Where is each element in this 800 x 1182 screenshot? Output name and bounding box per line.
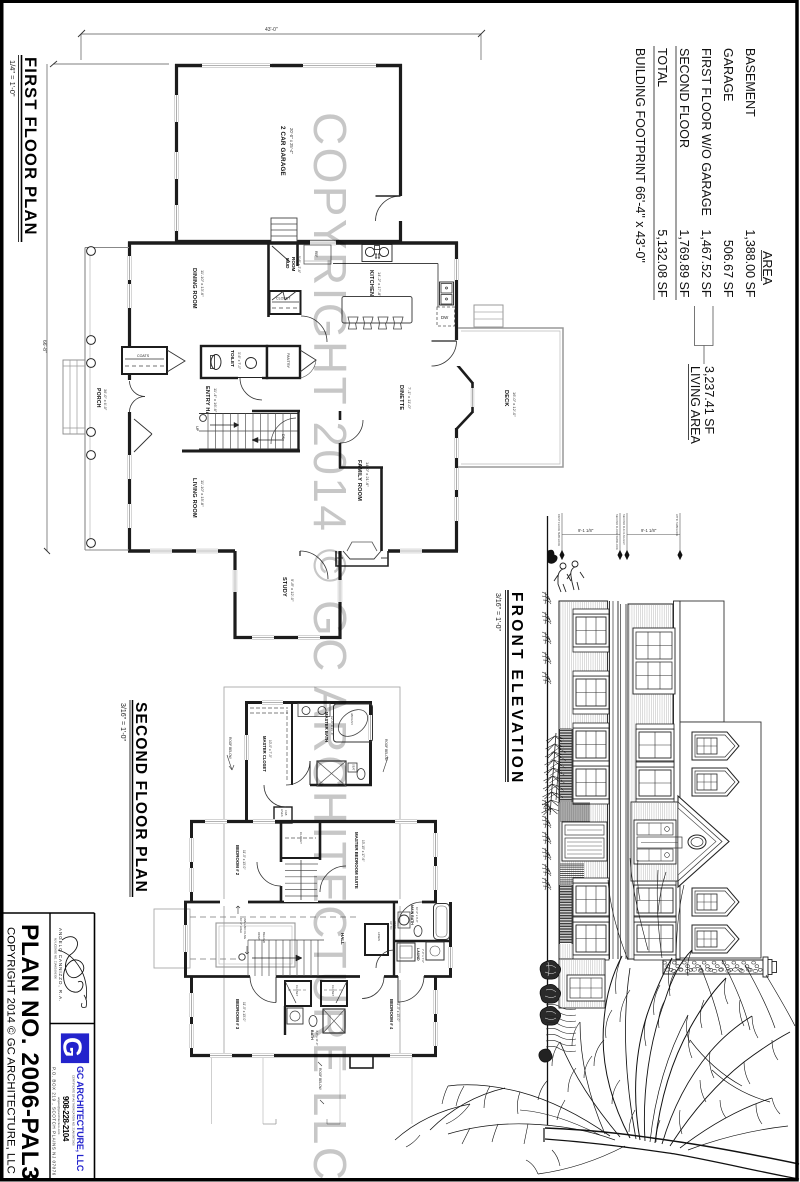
svg-text:ROOM: ROOM [291,257,296,271]
svg-text:11'-10" x 13'-6": 11'-10" x 13'-6" [200,270,205,297]
svg-text:PANTRY: PANTRY [286,353,290,369]
svg-text:ROOF BELOW: ROOF BELOW [228,737,232,759]
svg-text:1,769.89 SF: 1,769.89 SF [677,229,691,297]
svg-text:66'-8": 66'-8" [41,340,47,353]
svg-text:COPYRIGHT 2014 © GC ARCHITECTU: COPYRIGHT 2014 © GC ARCHITECTURE LLC [304,112,356,1182]
svg-text:LAUND: LAUND [416,948,420,961]
svg-text:SECOND FLOOR SUBFLOOR: SECOND FLOOR SUBFLOOR [615,514,619,550]
svg-text:1/4" = 1'-0": 1/4" = 1'-0" [8,60,17,97]
svg-text:10'-0" x 6'-0": 10'-0" x 6'-0" [415,907,419,923]
svg-text:LIVING ROOM: LIVING ROOM [191,478,197,518]
svg-text:PLAN NO. 2006-PAL3: PLAN NO. 2006-PAL3 [16,924,43,1180]
svg-text:16'-0" x 12'-0": 16'-0" x 12'-0" [512,392,517,417]
svg-text:11'-0" x 13'-0": 11'-0" x 13'-0" [242,1002,246,1021]
svg-text:CLOSET: CLOSET [295,985,299,996]
svg-text:MUD: MUD [285,258,290,269]
svg-text:BELOW: BELOW [262,932,266,943]
svg-text:KITCHEN: KITCHEN [368,270,374,296]
svg-text:13'-10" x 17'-6": 13'-10" x 17'-6" [361,840,365,861]
svg-text:DW: DW [441,315,449,320]
svg-text:SECOND FLOOR: SECOND FLOOR [677,48,691,148]
svg-text:OPEN: OPEN [257,932,261,941]
svg-text:3,237.41 SF: 3,237.41 SF [702,366,716,434]
svg-text:SECOND FLOOR PLAN: SECOND FLOOR PLAN [132,702,149,893]
svg-text:TOILET: TOILET [229,350,235,367]
svg-text:MAIN BATH: MAIN BATH [410,905,414,925]
svg-text:1,467.52 SF: 1,467.52 SF [699,229,713,297]
svg-text:LIVING AREA: LIVING AREA [688,366,702,444]
svg-text:CERTIFICATE OF AUTHORIZATION N: CERTIFICATE OF AUTHORIZATION NO. 21AI009… [72,1075,76,1146]
svg-text:LINEN: LINEN [280,809,284,817]
svg-text:BUILDING FOOTPRINT 66'-4" x 4: BUILDING FOOTPRINT 66'-4" x 43'-0" [633,48,647,263]
svg-text:10'-0" x 7'-0": 10'-0" x 7'-0" [268,740,272,758]
svg-text:2 CAR GARAGE: 2 CAR GARAGE [279,126,286,176]
svg-text:3/16" = 1'-0": 3/16" = 1'-0" [494,593,501,632]
svg-text:TOTAL: TOTAL [655,48,669,87]
svg-text:FIRST FLOOR PLAN: FIRST FLOOR PLAN [21,57,39,236]
svg-text:ANGELO CANNIZZO, R.A.: ANGELO CANNIZZO, R.A. [58,928,63,1002]
svg-text:9'-1 1/8": 9'-1 1/8" [641,528,657,533]
svg-text:DECK: DECK [503,390,509,407]
svg-text:GARAGE: GARAGE [721,48,735,102]
svg-text:11'-0" x 13'-0": 11'-0" x 13'-0" [396,1002,400,1021]
svg-text:BEDROOM # 3: BEDROOM # 3 [235,999,240,1030]
svg-text:BEDROOM # 4: BEDROOM # 4 [389,999,394,1030]
svg-text:GC ARCHITECTURE, LLC: GC ARCHITECTURE, LLC [75,1066,85,1172]
svg-text:UP: UP [195,426,199,432]
svg-text:9'-8" x 12'-0": 9'-8" x 12'-0" [290,579,295,602]
svg-text:14'-0" x 21'-6": 14'-0" x 21'-6" [365,462,370,487]
svg-text:11'-4" x 16'-6": 11'-4" x 16'-6" [213,388,218,413]
svg-text:FIRST FLOOR SUBFLOOR: FIRST FLOOR SUBFLOOR [557,514,561,546]
svg-text:5,132.08 SF: 5,132.08 SF [655,229,669,297]
svg-text:11'-10" x 15'-8": 11'-10" x 15'-8" [200,480,205,507]
svg-text:CLOSET: CLOSET [276,297,291,301]
svg-text:ROOF BELOW: ROOF BELOW [384,739,388,761]
svg-text:FIRST FLOOR W/O GARAGE: FIRST FLOOR W/O GARAGE [699,48,713,216]
svg-text:506.67 SF: 506.67 SF [721,240,735,298]
svg-text:3'-6" x 7'-0": 3'-6" x 7'-0" [237,352,241,370]
svg-text:1,388.00 SF: 1,388.00 SF [743,229,757,297]
svg-text:angelo@gcarchitecture.com: angelo@gcarchitecture.com [57,1097,61,1135]
svg-text:UP TO: UP TO [389,921,393,930]
svg-text:5'-6" x 2'-6": 5'-6" x 2'-6" [297,256,301,274]
svg-text:AREA: AREA [760,251,774,286]
svg-text:DN: DN [281,434,285,440]
svg-text:DINETTE: DINETTE [398,385,404,410]
svg-text:ATTIC SUBFLOOR: ATTIC SUBFLOOR [675,514,679,536]
svg-text:9'-1 1/8": 9'-1 1/8" [578,528,594,533]
svg-text:MASTER CLOSET: MASTER CLOSET [262,736,267,772]
svg-text:NJ LICENSE NO. 21AI01606300: NJ LICENSE NO. 21AI01606300 [54,938,58,979]
svg-text:43'-0": 43'-0" [265,27,278,33]
svg-text:20'-0" x 25'-4": 20'-0" x 25'-4" [289,128,294,154]
svg-text:10'-0" HIGH: 10'-0" HIGH [239,918,243,933]
svg-text:COATS: COATS [137,354,150,358]
svg-text:908-228-2104: 908-228-2104 [61,1096,70,1142]
svg-text:7'-1" x 11'-0": 7'-1" x 11'-0" [407,387,412,410]
svg-text:COPYRIGHT 2014 © GC ARCHITECTU: COPYRIGHT 2014 © GC ARCHITECTURE, LLC [5,927,17,1174]
svg-text:WALL/NO CLNG: WALL/NO CLNG [243,918,247,939]
svg-text:C: C [64,1043,81,1054]
svg-text:BEDROOM # 2: BEDROOM # 2 [235,845,240,876]
svg-text:SECOND FLR CLNG HGT: SECOND FLR CLNG HGT [622,514,626,545]
svg-text:14'-2" x 17'-8": 14'-2" x 17'-8" [377,272,382,297]
svg-text:FRONT ELEVATION: FRONT ELEVATION [508,592,525,786]
svg-text:11'-0" x 13'-0": 11'-0" x 13'-0" [242,850,246,869]
svg-text:BASEMENT: BASEMENT [743,48,757,117]
svg-text:LINEN: LINEN [377,932,381,941]
svg-text:7'-0" x 7'-0": 7'-0" x 7'-0" [421,949,425,963]
svg-text:DINING ROOM: DINING ROOM [191,268,197,309]
svg-text:36'-0" x 6'-0": 36'-0" x 6'-0" [103,389,107,411]
svg-text:P.O. BOX 219 , SCOTCH PLAINS N: P.O. BOX 219 , SCOTCH PLAINS NJ 07076 [52,1067,57,1176]
svg-text:PORCH: PORCH [95,388,101,408]
svg-text:3/16" = 1'-0": 3/16" = 1'-0" [119,703,126,742]
svg-text:STUDY: STUDY [281,577,287,597]
svg-text:CAB: CAB [284,810,288,816]
